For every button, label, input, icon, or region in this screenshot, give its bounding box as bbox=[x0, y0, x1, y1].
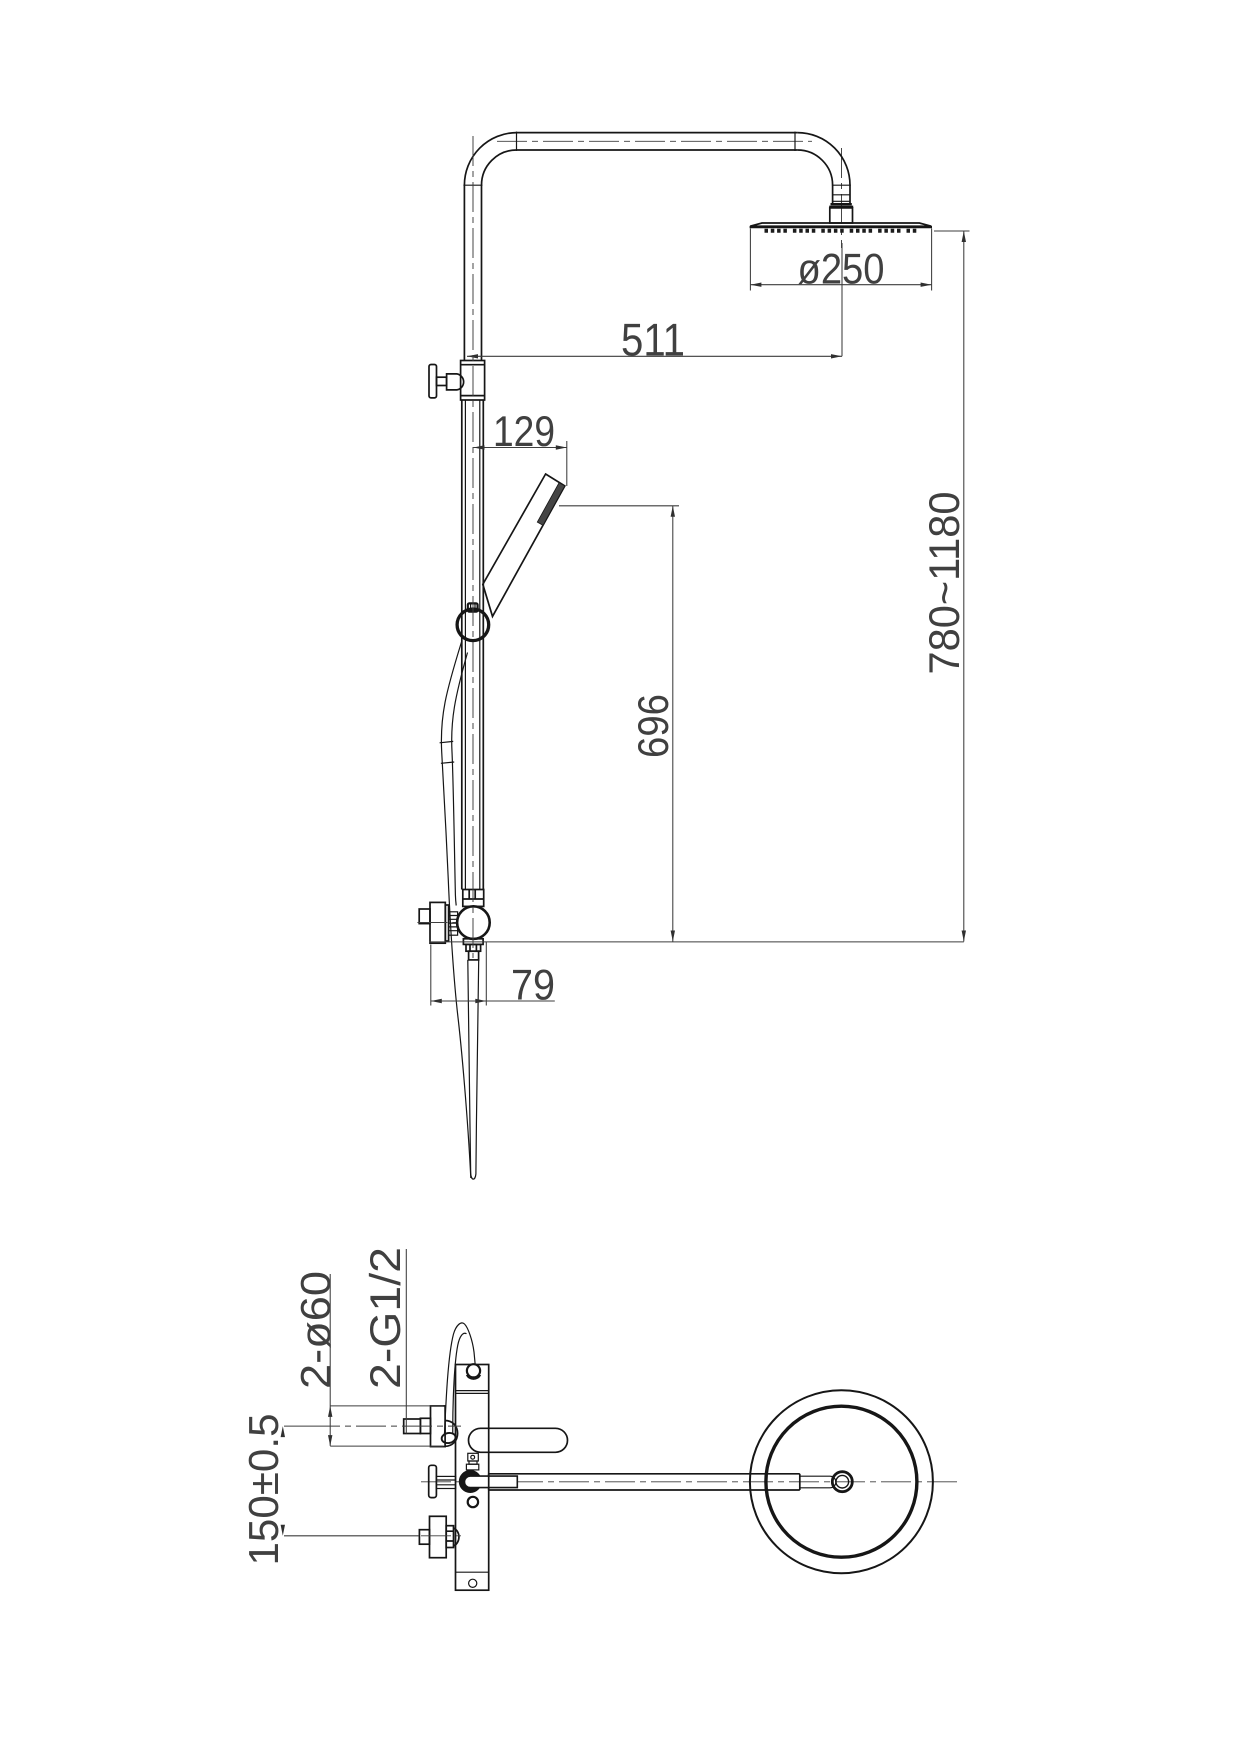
svg-text:2-G1/2: 2-G1/2 bbox=[362, 1247, 410, 1389]
svg-text:696: 696 bbox=[630, 694, 678, 758]
svg-text:511: 511 bbox=[621, 314, 685, 366]
svg-text:79: 79 bbox=[511, 962, 555, 1010]
svg-text:2-ø60: 2-ø60 bbox=[292, 1271, 339, 1389]
svg-text:129: 129 bbox=[493, 408, 555, 456]
svg-text:150±0.5: 150±0.5 bbox=[240, 1414, 287, 1566]
svg-text:780~1180: 780~1180 bbox=[921, 492, 969, 675]
svg-text:ø250: ø250 bbox=[798, 246, 885, 294]
